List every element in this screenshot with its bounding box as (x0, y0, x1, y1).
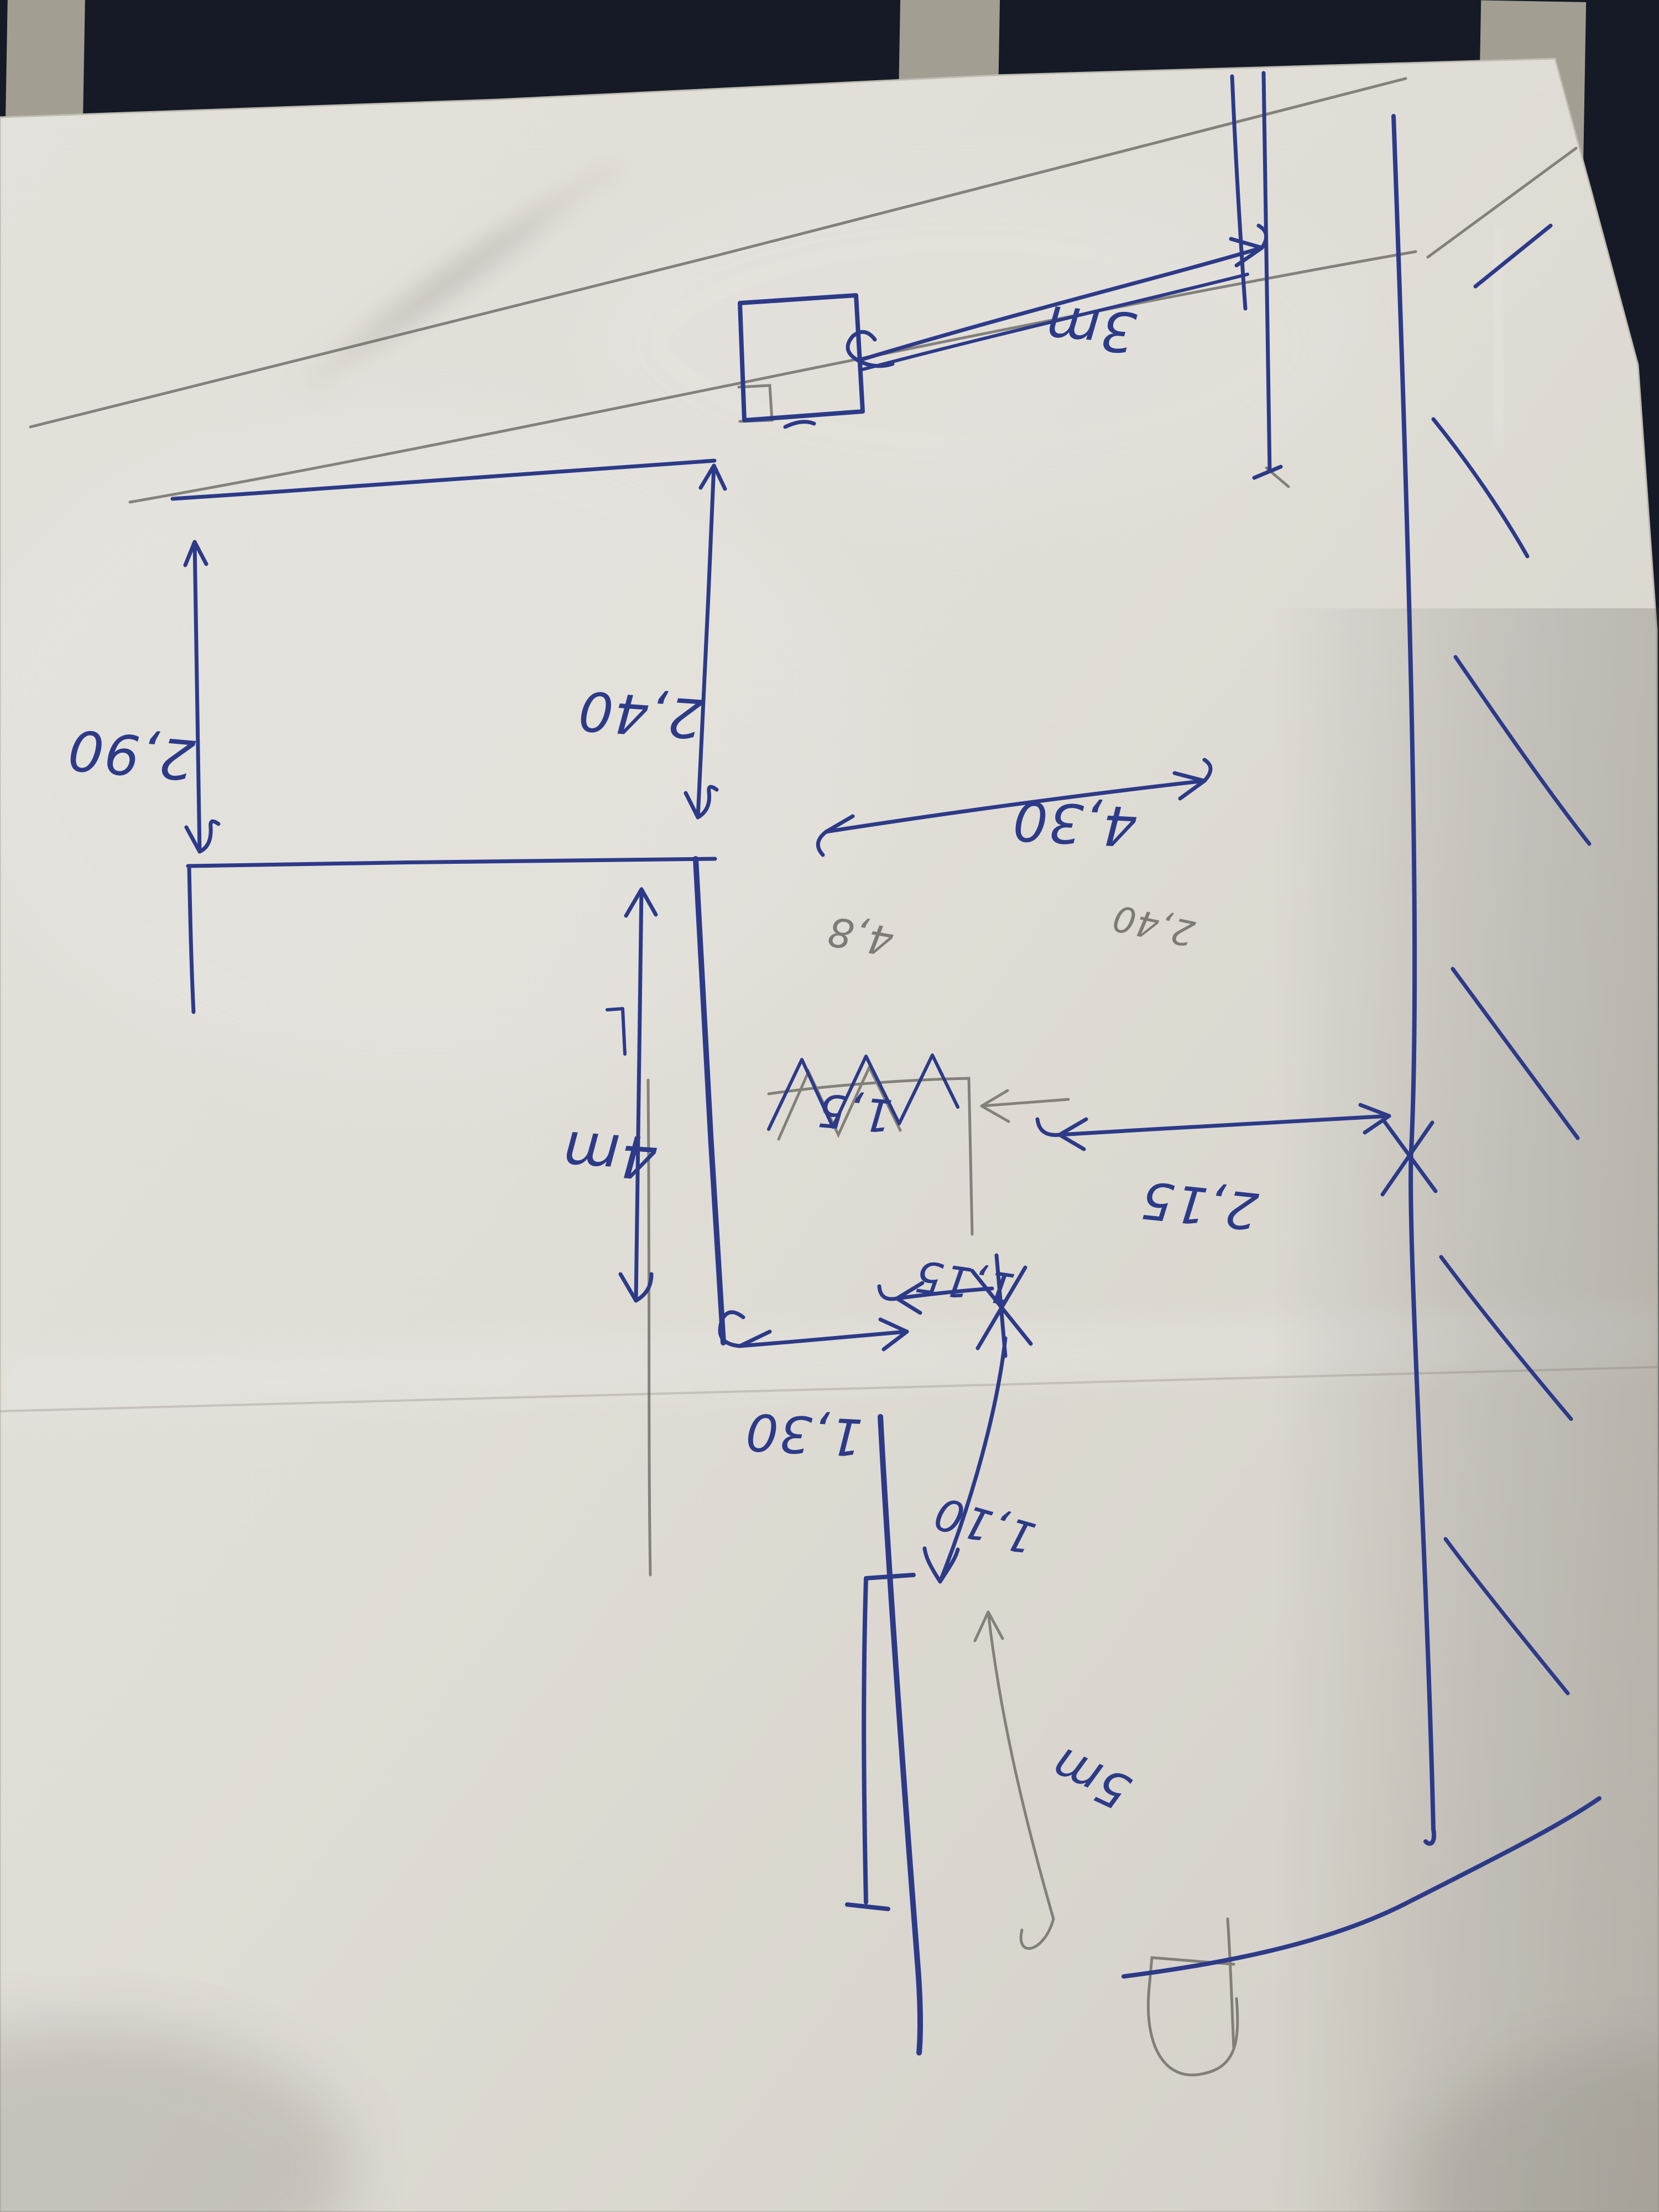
sketch-canvas: 3m 2,90 2,40 4,30 4m 1,5 2,15 1,15 1,30 … (0, 0, 1659, 2212)
photo-vignette (0, 0, 1659, 2212)
photo-of-sketch: 3m 2,90 2,40 4,30 4m 1,5 2,15 1,15 1,30 … (0, 0, 1659, 2212)
